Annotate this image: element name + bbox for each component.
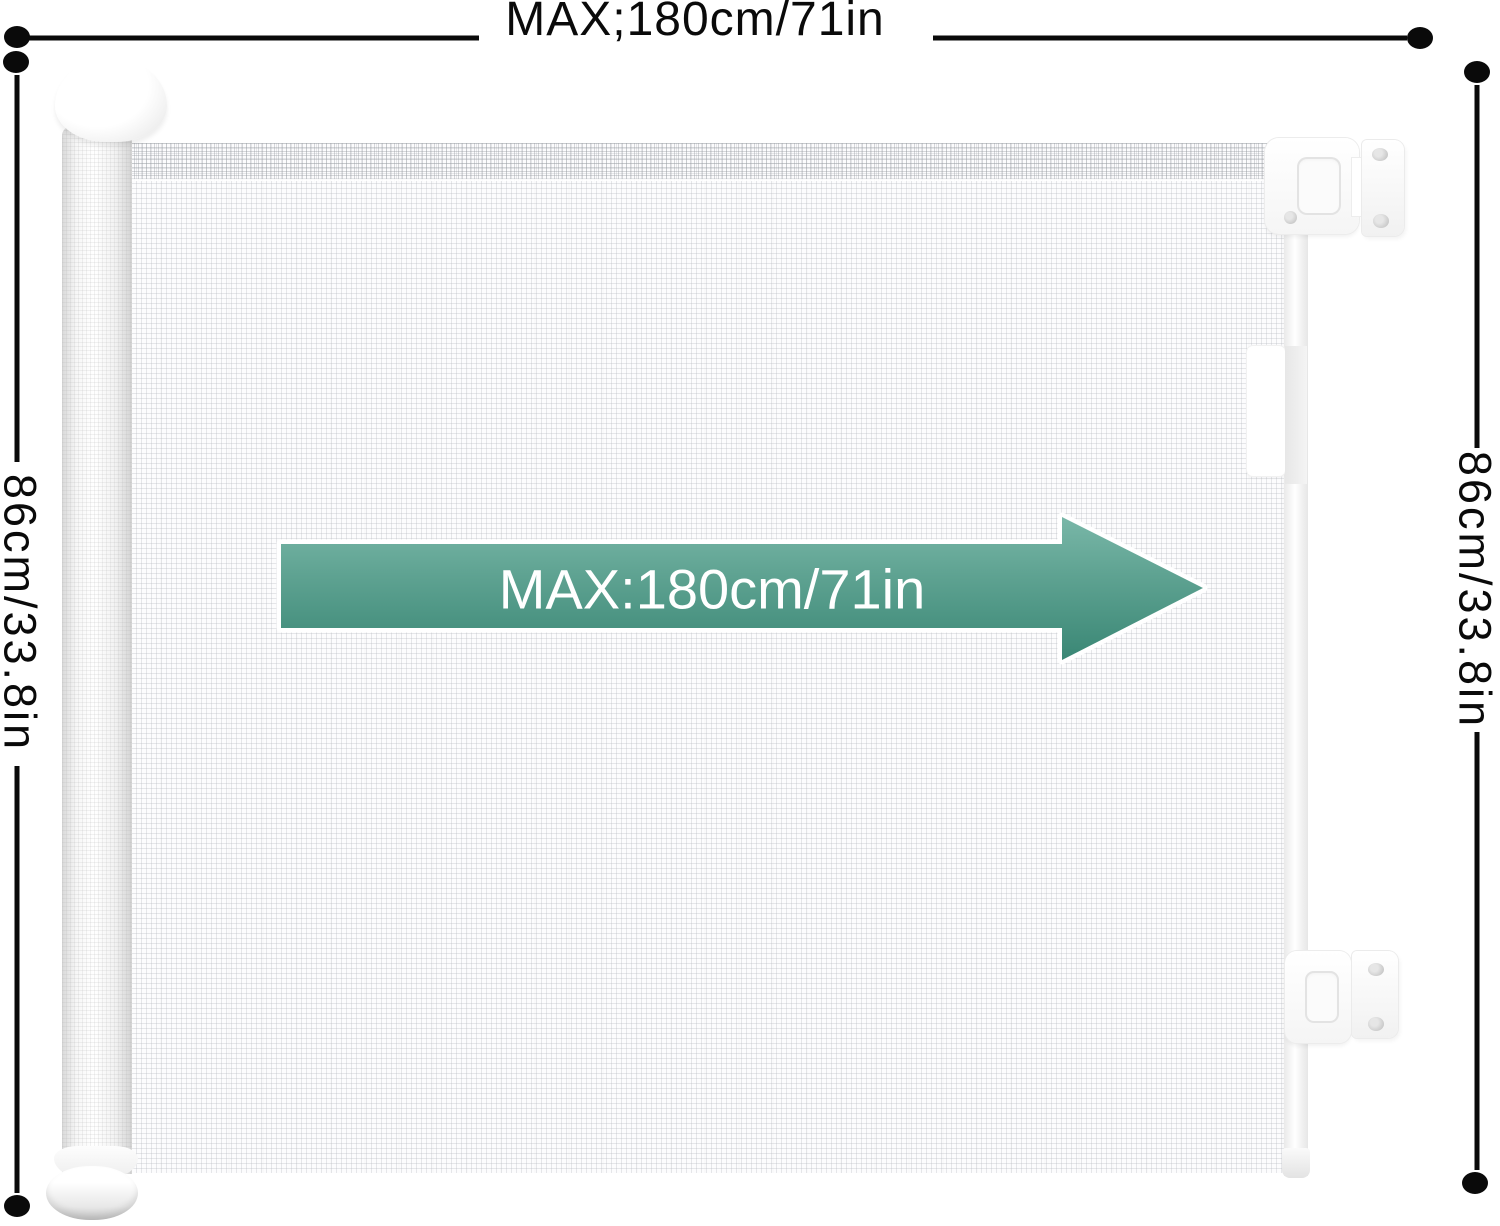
left-line-top-endpoint-dot xyxy=(3,51,29,73)
dimension-lines xyxy=(17,38,1477,1193)
right-height-dimension-label: 86cm/33.8in xyxy=(1451,451,1498,729)
right-line-bottom-endpoint-dot xyxy=(1462,1172,1488,1194)
right-line-top-endpoint-dot xyxy=(1464,61,1490,83)
left-line-bottom-endpoint-dot xyxy=(4,1195,30,1217)
dimension-endpoint-dots xyxy=(3,26,1490,1217)
top-line-left-endpoint-dot xyxy=(4,26,30,48)
left-height-dimension-label: 86cm/33.8in xyxy=(0,474,44,752)
dimension-lines-layer xyxy=(0,0,1500,1226)
top-width-dimension-label: MAX;180cm/71in xyxy=(505,0,885,45)
top-line-right-endpoint-dot xyxy=(1407,27,1433,49)
product-dimension-diagram: MAX:180cm/71in MAX;180cm/71in 86cm/33.8i… xyxy=(0,0,1500,1226)
